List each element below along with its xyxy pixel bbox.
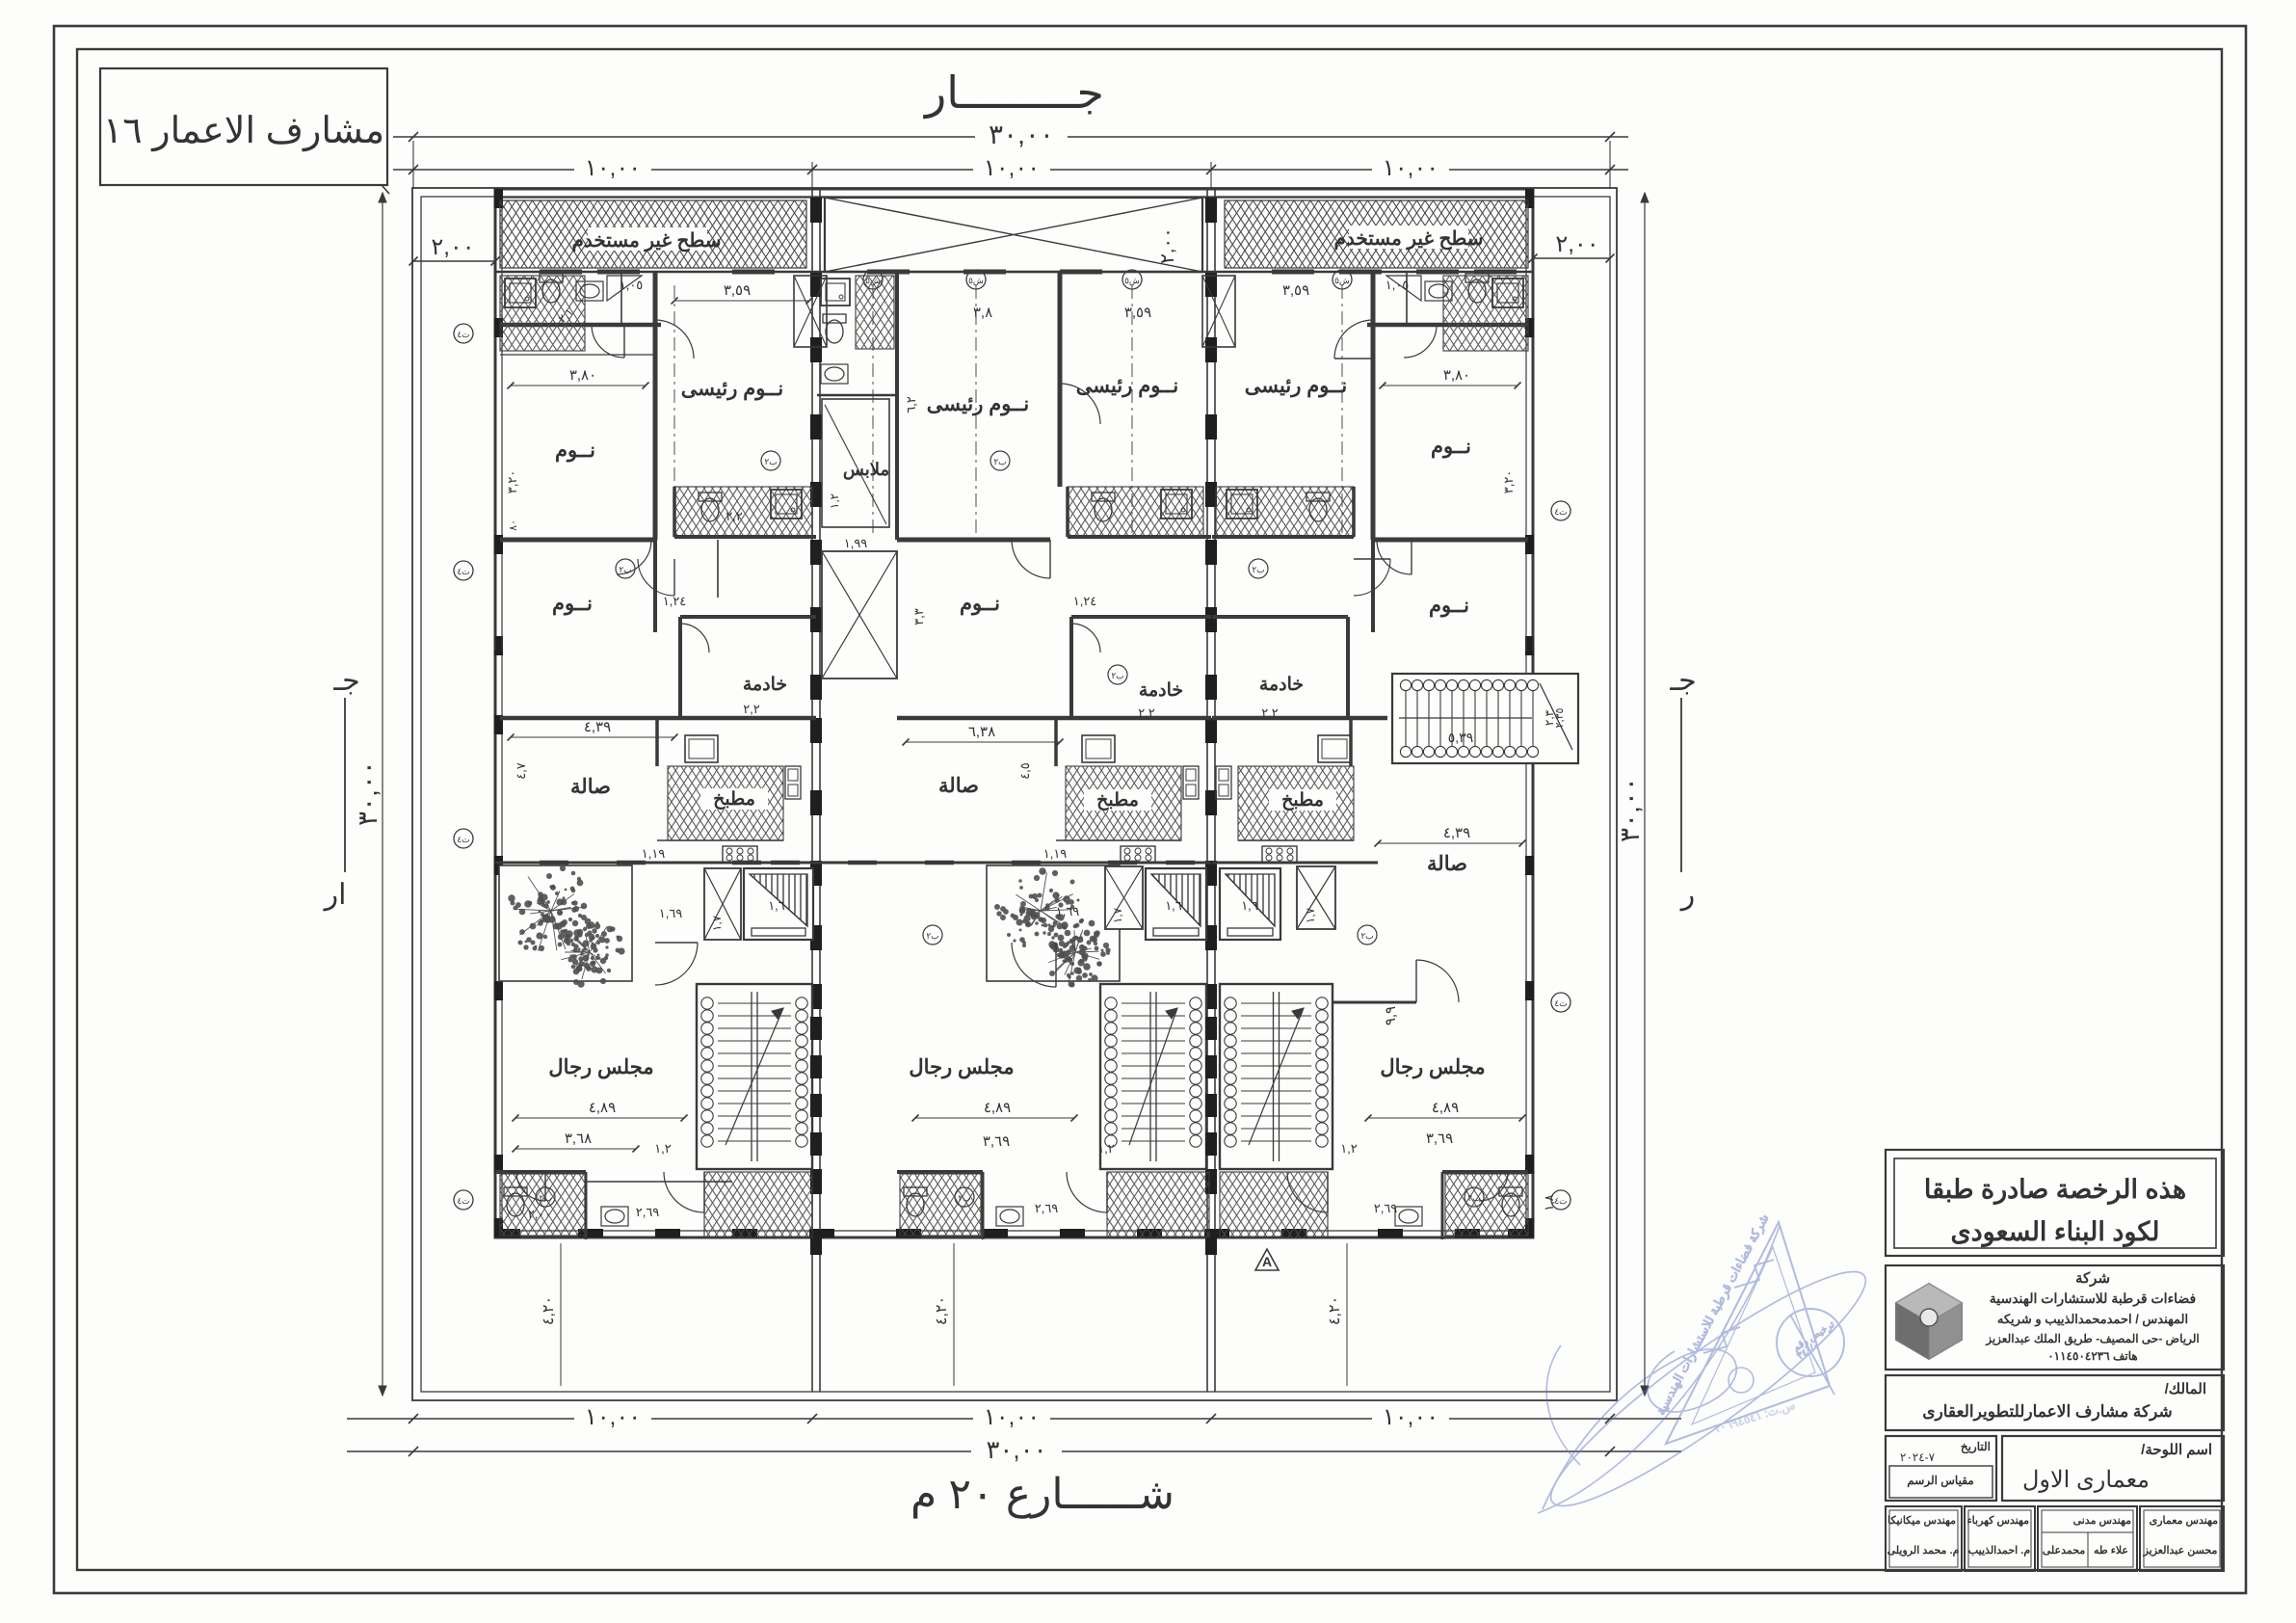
svg-text:٣,٦٩: ٣,٦٩ [1426,1131,1453,1147]
svg-text:١,٦٩: ١,٦٩ [659,906,683,920]
svg-text:مهندس معمارى: مهندس معمارى [2150,1515,2218,1527]
svg-text:١,٨: ١,٨ [1542,1194,1556,1211]
svg-text:فضاءات قرطبة للاستشارات الهندس: فضاءات قرطبة للاستشارات الهندسية [1990,1290,2197,1307]
svg-text:سطح غير مستخدم: سطح غير مستخدم [1333,228,1483,251]
svg-text:مطبخ: مطبخ [1281,790,1324,811]
svg-text:٣,٥٩: ٣,٥٩ [724,282,751,299]
svg-text:الرياض -حى المصيف- طريق الملك: الرياض -حى المصيف- طريق الملك عبدالعزيز [1985,1332,2200,1346]
svg-text:٢,٦٩: ٢,٦٩ [1035,1201,1059,1215]
svg-text:٤,٥: ٤,٥ [1017,762,1032,780]
svg-text:صالة: صالة [1427,853,1467,875]
svg-text:جـــــــــار: جـــــــــار [923,67,1104,120]
svg-text:١,٠٥: ١,٠٥ [1386,278,1410,292]
svg-text:ش٥: ش٥ [968,276,984,286]
svg-text:١,٢٤: ١,٢٤ [663,594,687,608]
svg-text:٣,٨٠: ٣,٨٠ [1443,367,1470,384]
svg-text:١,١٩: ١,١٩ [1043,846,1068,861]
svg-text:٣,٥٩: ٣,٥٩ [1282,282,1309,299]
svg-text:A: A [1262,1254,1272,1269]
svg-text:ب٢: ب٢ [764,457,777,466]
svg-text:٢,٦٩: ٢,٦٩ [1374,1201,1398,1215]
svg-text:نــوم رئيسى: نــوم رئيسى [1245,375,1347,398]
svg-text:٣,٨٠: ٣,٨٠ [569,367,596,384]
svg-text:٤,٧: ٤,٧ [514,762,528,780]
svg-text:٧-٢٠٢٤: ٧-٢٠٢٤ [1900,1450,1936,1464]
svg-text:جـ: جـ [332,665,359,697]
svg-text:٤,٣٩: ٤,٣٩ [584,719,611,735]
svg-text:ب٢: ب٢ [1467,1193,1480,1203]
svg-text:المالك/: المالك/ [2165,1381,2206,1397]
svg-text:٢,٦٩: ٢,٦٩ [636,1205,660,1219]
svg-text:مطبخ: مطبخ [713,789,755,810]
svg-text:صالة: صالة [938,775,979,797]
svg-text:مهندس ميكانيكا: مهندس ميكانيكا [1887,1515,1956,1527]
svg-text:٤,٢٠: ٤,٢٠ [541,1296,557,1325]
svg-text:مهندس مدنى: مهندس مدنى [2073,1515,2132,1527]
svg-text:اسم اللوحة/: اسم اللوحة/ [2141,1442,2212,1458]
svg-text:ت٤: ت٤ [1554,1196,1567,1206]
svg-text:ت٤: ت٤ [457,835,469,844]
svg-text:ر: ر [1679,879,1696,912]
svg-text:٣,٦٨: ٣,٦٨ [565,1131,592,1147]
svg-text:٣,٢٠: ٣,٢٠ [1501,470,1516,494]
svg-text:١,٧: ١,٧ [1111,907,1124,923]
svg-text:نــوم رئيسى: نــوم رئيسى [1076,375,1178,398]
svg-text:نــوم: نــوم [552,593,593,616]
svg-text:٢,٠٠: ٢,٠٠ [1157,227,1178,264]
svg-text:ت٤: ت٤ [457,330,469,339]
svg-text:ب٢: ب٢ [1111,671,1123,680]
svg-text:نــوم: نــوم [1429,595,1469,618]
svg-text:١٠,٠٠: ١٠,٠٠ [984,1404,1040,1430]
svg-text:٣٠,٠٠: ٣٠,٠٠ [989,120,1054,149]
svg-text:م. محمد الرويلى: م. محمد الرويلى [1887,1545,1960,1556]
svg-text:٢,٢: ٢,٢ [1261,705,1279,720]
svg-text:١٠,٠٠: ١٠,٠٠ [585,155,641,181]
svg-text:٣,٢٠: ٣,٢٠ [505,470,519,494]
svg-text:٣٠,٠٠: ٣٠,٠٠ [353,760,383,826]
svg-text:المهندس / احمدمحمدالذييب و شري: المهندس / احمدمحمدالذييب و شريكه [1997,1312,2188,1327]
svg-text:ار: ار [323,879,347,912]
svg-text:١,٢: ١,٢ [654,1141,672,1156]
svg-text:٤,٨٩: ٤,٨٩ [984,1100,1011,1116]
svg-text:٨٠: ٨٠ [508,519,519,531]
svg-text:٤,٨٩: ٤,٨٩ [589,1100,616,1116]
svg-text:١٠,٠٠: ١٠,٠٠ [984,155,1040,181]
svg-text:مهندس كهرباء: مهندس كهرباء [1966,1515,2029,1527]
svg-text:مجلس رجال: مجلس رجال [1380,1056,1485,1079]
svg-text:نــوم رئيسى: نــوم رئيسى [927,393,1029,416]
svg-text:شــــــارع ٢٠ م: شــــــارع ٢٠ م [910,1471,1174,1519]
svg-text:ب٢: ب٢ [1252,565,1264,574]
svg-text:٣,٦٩: ٣,٦٩ [983,1133,1010,1150]
svg-text:مجلس رجال: مجلس رجال [548,1056,653,1079]
svg-text:نــوم رئيسى: نــوم رئيسى [681,378,783,401]
svg-text:ملابس: ملابس [843,460,889,480]
svg-text:التاريخ: التاريخ [1961,1440,1991,1454]
svg-text:ش٥: ش٥ [1334,276,1350,286]
svg-text:هاتف ٠١١٤٥٠٤٢٣٦: هاتف ٠١١٤٥٠٤٢٣٦ [2047,1349,2138,1363]
svg-text:محسن عبدالعزيز: محسن عبدالعزيز [2143,1545,2218,1556]
svg-text:١,٢: ١,٢ [1097,1141,1115,1156]
svg-text:١,٦: ١,٦ [1165,898,1182,913]
svg-text:ب٢: ب٢ [539,1193,551,1203]
svg-text:ب٢: ب٢ [926,931,938,941]
svg-text:معمارى الاول: معمارى الاول [2022,1467,2150,1493]
svg-text:٣,٥٩: ٣,٥٩ [1124,305,1151,321]
svg-text:٤,٣٩: ٤,٣٩ [1443,825,1470,841]
svg-text:٤,٨٩: ٤,٨٩ [1432,1100,1459,1116]
svg-text:م. احمدالذييب: م. احمدالذييب [1968,1545,2030,1556]
svg-text:٣٠,٠٠: ٣٠,٠٠ [1615,777,1645,842]
svg-text:مقياس الرسم: مقياس الرسم [1907,1474,1973,1488]
svg-text:علاء طه: علاء طه [2094,1545,2128,1556]
svg-text:مطبخ: مطبخ [1096,790,1139,811]
svg-text:ب٢: ب٢ [1360,931,1373,941]
svg-text:٦,٣٨: ٦,٣٨ [968,724,995,740]
svg-text:محمدعلى: محمدعلى [2043,1545,2086,1556]
svg-text:مجلس رجال: مجلس رجال [909,1056,1014,1079]
svg-text:٢,٢: ٢,٢ [743,702,760,716]
svg-text:١,٢: ١,٢ [1340,1141,1358,1156]
svg-text:١,٧: ١,٧ [710,915,724,931]
svg-text:ت٤: ت٤ [457,567,469,576]
svg-text:لكود البناء السعودى: لكود البناء السعودى [1950,1217,2159,1248]
svg-text:خادمة: خادمة [1139,680,1183,701]
svg-text:١,٦: ١,٦ [768,898,785,913]
svg-text:هذه الرخصة صادرة طبقا: هذه الرخصة صادرة طبقا [1924,1175,2186,1206]
svg-text:سطح غير مستخدم: سطح غير مستخدم [571,230,721,253]
svg-text:٣٠,٠٠: ٣٠,٠٠ [986,1435,1046,1464]
svg-text:٤,٢٠: ٤,٢٠ [934,1296,950,1325]
svg-text:١,٢: ١,٢ [828,493,841,509]
svg-text:٢,٣: ٢,٣ [1543,709,1556,726]
svg-text:ش٥: ش٥ [1124,276,1140,286]
svg-text:٢,٢: ٢,٢ [1138,705,1155,720]
svg-text:٤,٢٠: ٤,٢٠ [1327,1296,1343,1325]
svg-text:٢,٠٠: ٢,٠٠ [431,234,474,260]
svg-text:ب٢: ب٢ [958,1193,970,1203]
svg-text:صالة: صالة [570,776,611,798]
svg-text:١٠,٠٠: ١٠,٠٠ [1383,1404,1438,1430]
svg-text:نــوم: نــوم [960,593,1000,616]
svg-text:ت٤: ت٤ [1554,998,1567,1008]
svg-text:٢,٠٠: ٢,٠٠ [528,1207,552,1221]
svg-text:٥,٣٩: ٥,٣٩ [1448,730,1473,745]
svg-text:١,٦: ١,٦ [1241,898,1258,913]
svg-text:١,١٩: ١,١٩ [642,846,666,861]
svg-text:خادمة: خادمة [1259,675,1304,695]
svg-text:ب٢: ب٢ [619,565,631,574]
svg-text:مشارف الاعمار ١٦: مشارف الاعمار ١٦ [103,111,384,152]
svg-text:١,٦٩: ١,٦٩ [1056,904,1080,918]
svg-text:خادمة: خادمة [743,675,787,695]
svg-text:ت٤: ت٤ [457,1196,469,1206]
svg-text:نــوم: نــوم [555,439,595,463]
svg-text:١,٧: ١,٧ [1304,907,1317,923]
svg-text:شركة: شركة [2075,1270,2110,1287]
svg-text:١,٩٩: ١,٩٩ [844,536,868,550]
svg-text:١٠,٠٠: ١٠,٠٠ [1383,155,1438,181]
svg-text:٢,٢: ٢,٢ [726,509,743,523]
svg-text:١٠,٠٠: ١٠,٠٠ [585,1404,641,1430]
svg-text:نــوم: نــوم [1431,436,1471,459]
svg-text:١,٠٥: ١,٠٥ [620,278,644,292]
svg-text:٦,٢: ٦,٢ [904,396,918,413]
svg-text:٢,٠٠: ٢,٠٠ [1555,231,1598,257]
svg-text:شركة مشارف الاعمارللتطويرالعقا: شركة مشارف الاعمارللتطويرالعقارى [1922,1402,2173,1422]
svg-text:ت٤: ت٤ [1554,507,1567,517]
svg-text:ب٢: ب٢ [993,457,1006,466]
svg-text:١,٢٤: ١,٢٤ [1073,594,1097,608]
svg-text:جـ: جـ [1669,665,1696,697]
svg-text:٣,٣: ٣,٣ [911,608,926,625]
